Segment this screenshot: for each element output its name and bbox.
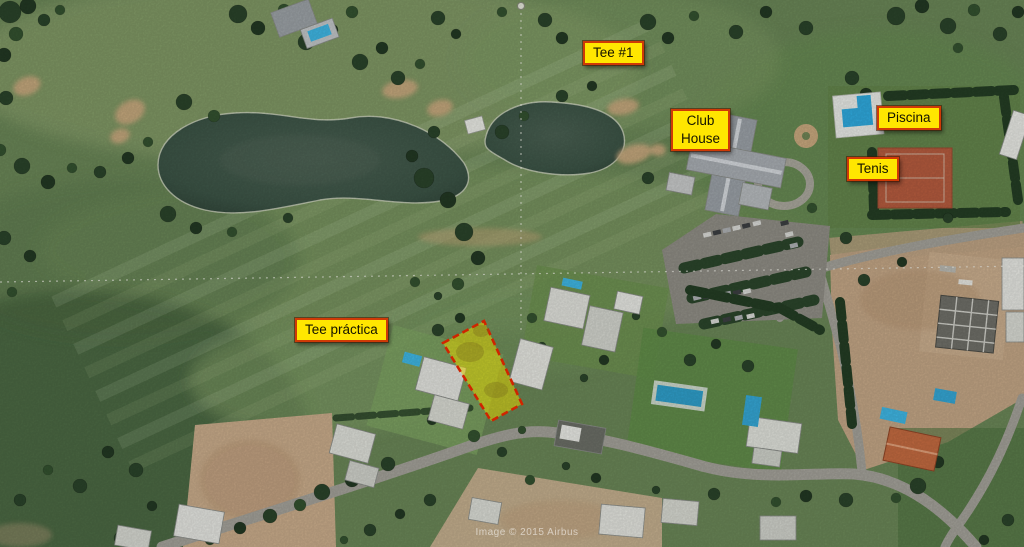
label-piscina: Piscina <box>877 106 941 130</box>
label-club-house: Club House <box>671 109 730 151</box>
label-tenis: Tenis <box>847 157 899 181</box>
photo-grain-overlay <box>0 0 1024 547</box>
imagery-watermark: Image © 2015 Airbus <box>462 527 592 538</box>
label-tee-1: Tee #1 <box>583 41 644 65</box>
label-tee-practica: Tee práctica <box>295 318 388 342</box>
satellite-scene <box>0 0 1024 547</box>
annotated-satellite-map: Tee #1 Club House Piscina Tenis Tee prác… <box>0 0 1024 547</box>
